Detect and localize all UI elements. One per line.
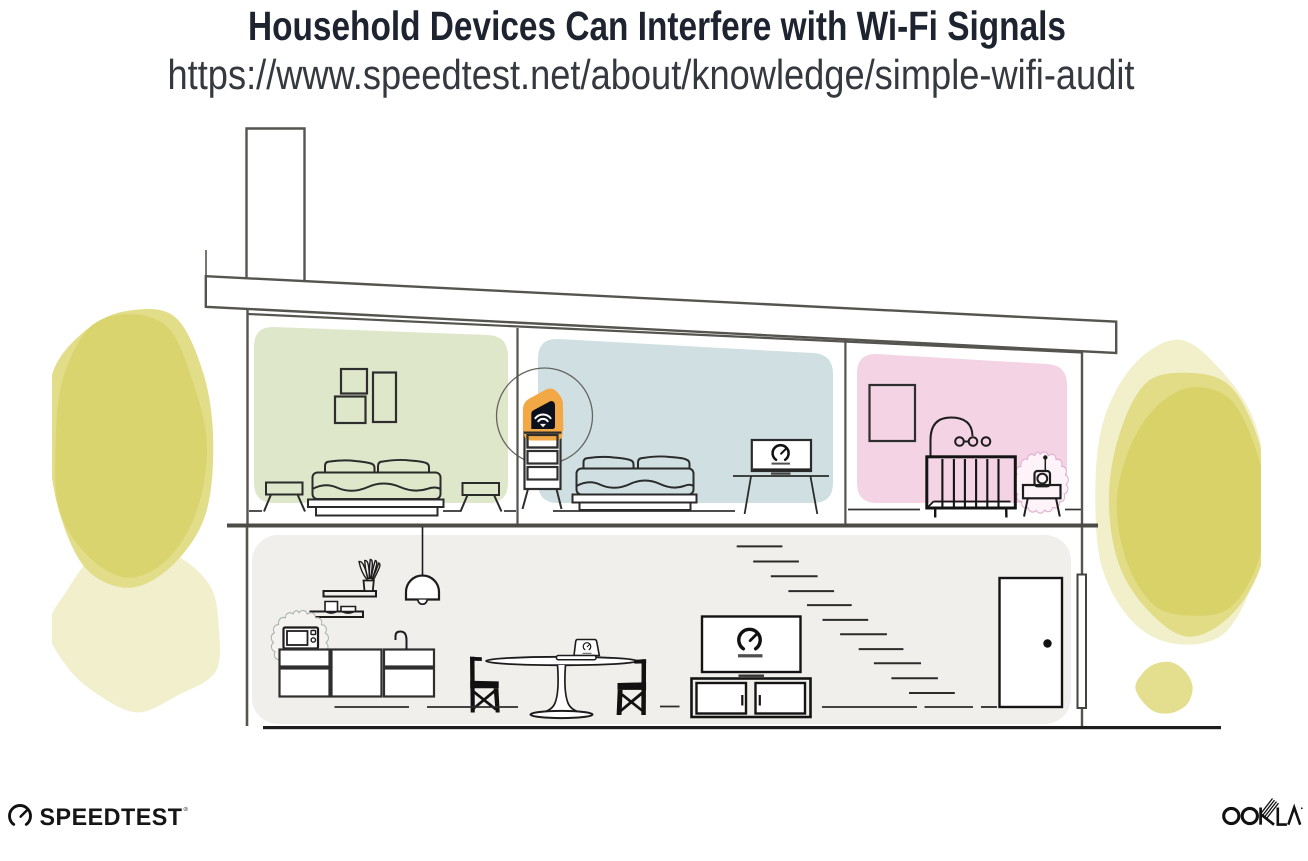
svg-text:®: ® [184,806,189,813]
svg-text:https://www.speedtest.net/abou: https://www.speedtest.net/about/knowledg… [168,51,1135,98]
svg-text:SPEEDTEST: SPEEDTEST [40,804,183,831]
svg-text:Household Devices Can Interfer: Household Devices Can Interfere with Wi-… [248,3,1066,49]
